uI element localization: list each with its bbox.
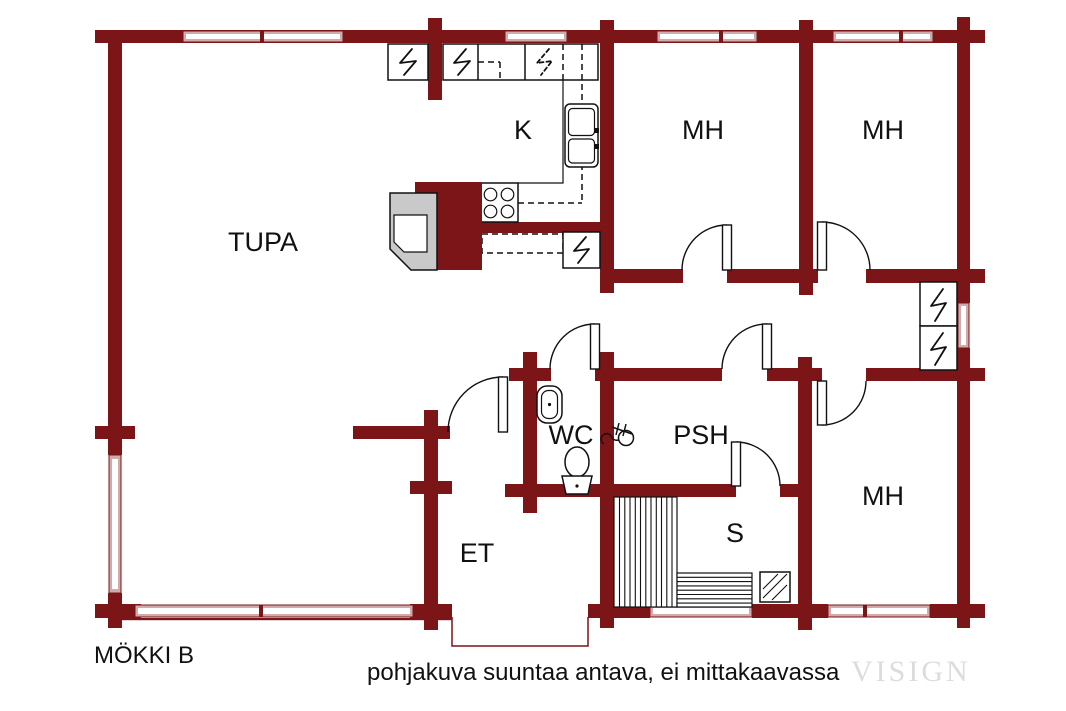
floor-plan-drawing: TUPA K MH MH MH WC PSH S ET (0, 0, 1066, 711)
plan-caption: pohjakuva suuntaa antava, ei mittakaavas… (367, 659, 839, 687)
door-bedroom2 (818, 222, 871, 270)
washbasin (537, 386, 562, 423)
window-bedroom3-south (828, 605, 930, 617)
window-hall-east (958, 303, 969, 348)
window-bedroom1-north (657, 31, 757, 42)
upper-cabinet-dashed (482, 234, 563, 253)
window-bedroom2-north (833, 31, 933, 42)
door-sauna (732, 442, 781, 486)
firebox-opening (394, 215, 427, 252)
toilet (562, 447, 592, 494)
door-washroom (722, 324, 772, 369)
terrace-edge-line (122, 618, 452, 620)
label-bedroom3: MH (862, 481, 904, 511)
floor-plan-page: TUPA K MH MH MH WC PSH S ET MÖKKI B pohj… (0, 0, 1066, 711)
label-entrance: ET (460, 538, 495, 568)
door-bedroom3 (818, 381, 867, 425)
label-bedroom1: MH (682, 115, 724, 145)
door-wc (550, 324, 600, 369)
hall-appliances (920, 282, 957, 370)
entrance-porch (452, 617, 588, 646)
label-bedroom2: MH (862, 115, 904, 145)
window-tupa-west (109, 455, 121, 593)
windows (109, 31, 969, 617)
stove (480, 183, 518, 222)
sauna-heater (760, 572, 790, 602)
sauna-benches (614, 497, 752, 607)
door-entrance-to-tupa (448, 377, 508, 432)
window-tupa-south (135, 605, 413, 617)
door-bedroom1 (682, 225, 732, 270)
kitchen-sink (565, 104, 599, 167)
fireplace (390, 182, 482, 270)
label-tupa: TUPA (228, 227, 298, 257)
label-sauna: S (726, 518, 744, 548)
walls (95, 17, 985, 630)
label-wc: WC (549, 420, 594, 450)
label-washroom: PSH (673, 420, 729, 450)
window-tupa-north (183, 31, 343, 42)
label-kitchen: K (514, 115, 532, 145)
watermark-logo: VISIGN (851, 655, 971, 689)
plan-title: MÖKKI B (94, 642, 194, 670)
window-kitchen-north (505, 31, 567, 42)
